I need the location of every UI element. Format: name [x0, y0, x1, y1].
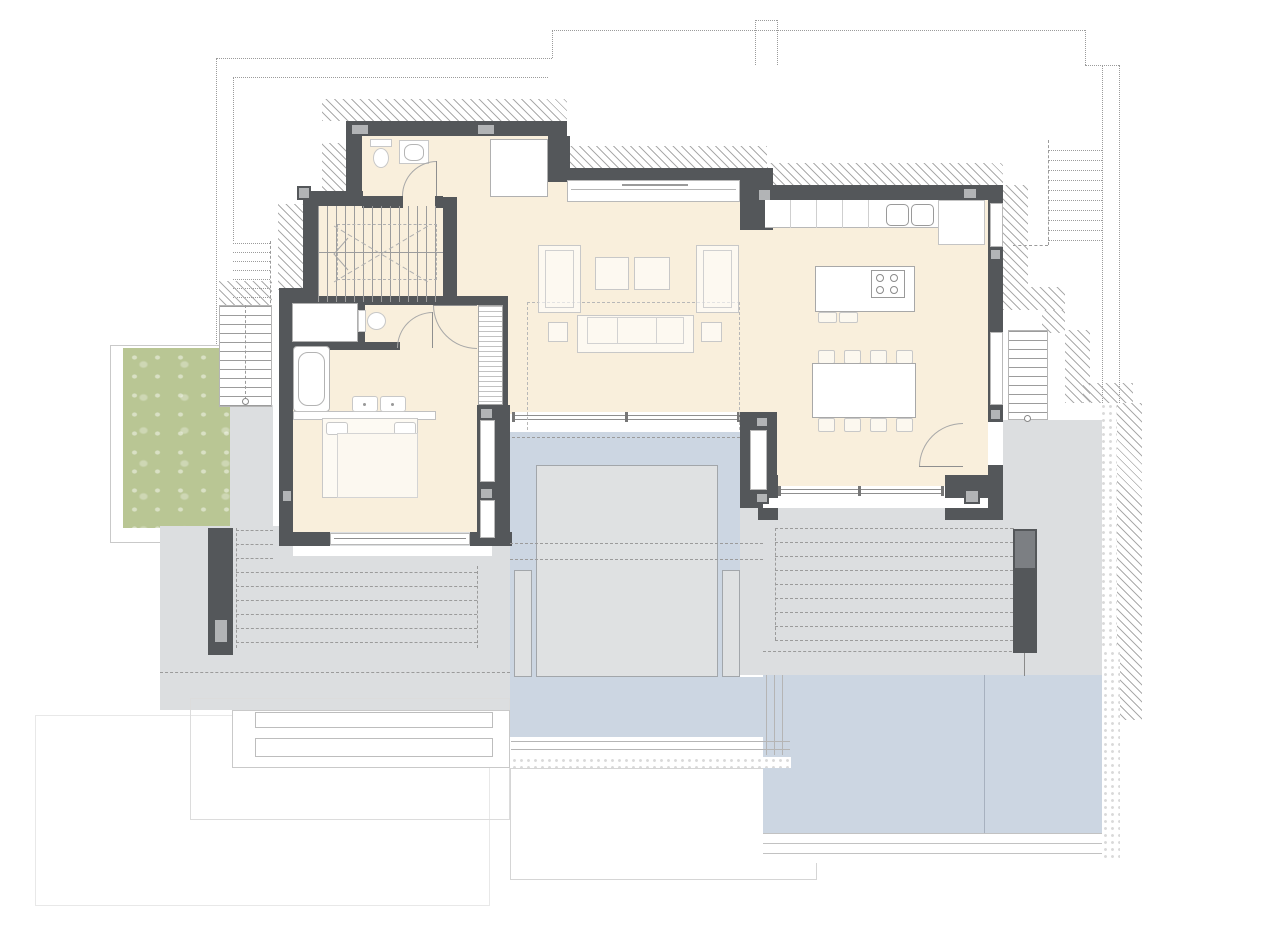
overhang-dash [510, 543, 763, 544]
retaining-wall-pillar [213, 618, 229, 644]
faucet-dot [363, 403, 366, 406]
dashed-stair-right-tread [1048, 230, 1102, 231]
sliding-door-tick [858, 486, 861, 496]
sliding-door-track [779, 489, 944, 490]
sofa-divider [617, 318, 618, 343]
garden-step [255, 738, 493, 757]
armchair-cushion [545, 250, 574, 308]
column [479, 487, 494, 500]
coffee-table [634, 257, 670, 290]
bed-blanket [337, 433, 418, 498]
wall [279, 532, 330, 546]
armchair-cushion [703, 250, 732, 308]
column [962, 187, 978, 200]
bathtub-inner [298, 352, 325, 406]
exterior-gap [293, 546, 492, 556]
boundary-line [755, 20, 756, 65]
window-bedroom-east [480, 500, 495, 538]
pergola-dash-row [236, 530, 273, 531]
hob-burner [890, 286, 898, 294]
hatch-band [567, 146, 767, 168]
boundary-line [233, 77, 234, 241]
side-table [701, 322, 722, 342]
kitchen-tall-cabinet [938, 200, 985, 245]
sliding-door-kitchen [778, 486, 945, 498]
column [476, 123, 496, 136]
window-bedroom-south [330, 533, 470, 545]
pergola-dash-row [775, 584, 1013, 585]
pool-step-line [766, 675, 767, 755]
overhang-dash [510, 559, 763, 560]
shelf-unit [478, 305, 503, 405]
overhang-dash [512, 437, 740, 438]
hatch-band [219, 281, 272, 307]
hob-burner [876, 274, 884, 282]
pergola-dash-row [236, 586, 477, 587]
dining-chair [818, 350, 835, 364]
closet [292, 303, 358, 342]
door-opening [988, 422, 1003, 465]
k-cabinet-divisions [765, 200, 870, 228]
dashed-stair-left-tread [233, 252, 270, 253]
pergola-dash-row [775, 542, 1013, 543]
stone-strip [1102, 650, 1120, 862]
window-line [622, 184, 688, 186]
pool-steps-right [763, 833, 1102, 863]
stone-strip [511, 757, 791, 768]
column [964, 489, 980, 504]
pool-step-line [511, 749, 790, 750]
dashed-stair-left-tread [233, 243, 270, 244]
sliding-door-tick [512, 412, 515, 422]
wall [346, 121, 567, 136]
window-kitchen-east [990, 203, 1003, 247]
window-line [571, 189, 736, 190]
dining-chair [896, 418, 913, 432]
pergola-dash-row [236, 614, 477, 615]
column [989, 248, 1002, 261]
hatch-band [1117, 403, 1142, 720]
wc-sink-basin [404, 144, 424, 161]
wall [303, 191, 318, 302]
column [479, 407, 494, 420]
dining-table [812, 363, 916, 418]
floor-plan [0, 0, 1280, 942]
door-leaf [432, 312, 433, 348]
terrace-pillar [1013, 570, 1037, 653]
boundary-line [1085, 30, 1086, 65]
kitchen-sink-basin [886, 204, 909, 226]
boundary-line [216, 58, 217, 350]
dashed-stair-right-tread [1048, 190, 1102, 191]
pool-divider-line [984, 675, 985, 833]
dashed-stair-right-tread [1048, 220, 1102, 221]
window-line [334, 538, 466, 539]
pergola-dash-row [236, 572, 477, 573]
hatch-band [1003, 287, 1065, 310]
toilet-bowl [367, 312, 386, 330]
stone-strip [1100, 403, 1117, 650]
hatch-band [322, 99, 567, 121]
sliding-door-tick [778, 486, 781, 496]
column [755, 492, 769, 504]
pool-central-lower [510, 677, 763, 737]
boundary-line [552, 30, 1085, 31]
pool-step-line [511, 741, 790, 742]
column [989, 408, 1002, 421]
pergola-dash-row [236, 558, 273, 559]
boundary-line [216, 58, 552, 59]
hatch-band [278, 204, 305, 290]
pergola-dash [477, 566, 478, 648]
sliding-door-track [779, 493, 944, 494]
pergola-dash-row [236, 642, 477, 643]
wall [443, 197, 457, 303]
hatch-band [1083, 383, 1133, 403]
stair-direction-cross [318, 206, 443, 302]
pool-platform-side [722, 570, 740, 677]
pergola-dash-row [775, 626, 1013, 627]
door-leaf [436, 161, 437, 196]
boundary-line [1102, 65, 1103, 403]
dashed-stair-left-tread [233, 261, 270, 262]
terrace-pillar [1013, 529, 1037, 570]
column [281, 489, 293, 503]
dining-chair [818, 418, 835, 432]
pergola-dash-row [775, 612, 1013, 613]
toilet-tank [370, 139, 392, 147]
coffee-table [595, 257, 629, 290]
overhang-dash [763, 651, 1037, 652]
pool-right [763, 675, 1102, 833]
dashed-stair-right-tread [1048, 200, 1102, 201]
pergola-dash [236, 528, 237, 648]
faucet-dot [391, 403, 394, 406]
window-bedroom-east [480, 420, 495, 482]
pergola-dash-row [775, 640, 1013, 641]
wall [279, 288, 293, 546]
stair-dot [1024, 415, 1031, 422]
sofa-divider [656, 318, 657, 343]
terrace-right-upper [1003, 420, 1102, 508]
boundary-line [777, 20, 778, 65]
pergola-dash-row [775, 598, 1013, 599]
hob [871, 270, 905, 298]
sofa-seat [587, 317, 684, 344]
pergola-dash-row [236, 628, 477, 629]
kitchen-sink-basin [911, 204, 934, 226]
pool-platform-side [514, 570, 532, 677]
boundary-line [552, 30, 553, 58]
exterior-stair-right [1008, 330, 1048, 420]
dashed-stair-right-tread [1048, 150, 1102, 151]
dining-chair [896, 350, 913, 364]
overhang-dash [160, 672, 510, 673]
boundary-line [233, 77, 548, 78]
exterior-gap [763, 498, 988, 508]
side-table [548, 322, 568, 342]
column [297, 186, 311, 200]
column [350, 123, 370, 136]
grass-patch [123, 348, 230, 528]
pillar-line [1024, 653, 1025, 676]
dashed-stair-right-tread [1048, 210, 1102, 211]
stair-center-line [245, 305, 246, 399]
wardrobe [490, 139, 548, 197]
dining-chair [870, 418, 887, 432]
pergola-dash-row [775, 528, 1013, 529]
dining-chair [844, 418, 861, 432]
dining-chair [844, 350, 861, 364]
stair-dot [242, 398, 249, 405]
boundary-line [1119, 65, 1120, 403]
toilet-tank [358, 310, 366, 332]
terrace-right [740, 508, 1102, 675]
dashed-stair-left-tread [233, 270, 270, 271]
dashed-stair-left-tread [233, 279, 270, 280]
garden-path [230, 405, 273, 530]
dining-chair [870, 350, 887, 364]
toilet-bowl [373, 148, 389, 168]
pergola-dash-row [236, 600, 477, 601]
column [755, 416, 769, 428]
hob-burner [890, 274, 898, 282]
window-kitchen-east [990, 332, 1003, 405]
door-leaf [433, 305, 477, 306]
island-stool [818, 312, 837, 323]
garden-step [255, 712, 493, 728]
sliding-door-tick [941, 486, 944, 496]
pool-step-line [782, 675, 783, 755]
dashed-stair-right-tread [1048, 180, 1102, 181]
island-stool [839, 312, 858, 323]
pergola-dash-row [775, 556, 1013, 557]
dashed-stair-right-tread [1048, 160, 1102, 161]
door-leaf [919, 466, 963, 467]
boundary-line [755, 20, 777, 21]
dashed-stair-right-tread [1048, 170, 1102, 171]
pool-platform [536, 465, 718, 677]
pergola-dash-row [236, 544, 273, 545]
hatch-band [767, 163, 1003, 185]
pool-step-line [774, 675, 775, 755]
window-pier [750, 430, 767, 490]
hob-burner [876, 286, 884, 294]
dashed-stair-right-tread [1048, 240, 1102, 241]
pergola-dash-row [775, 570, 1013, 571]
